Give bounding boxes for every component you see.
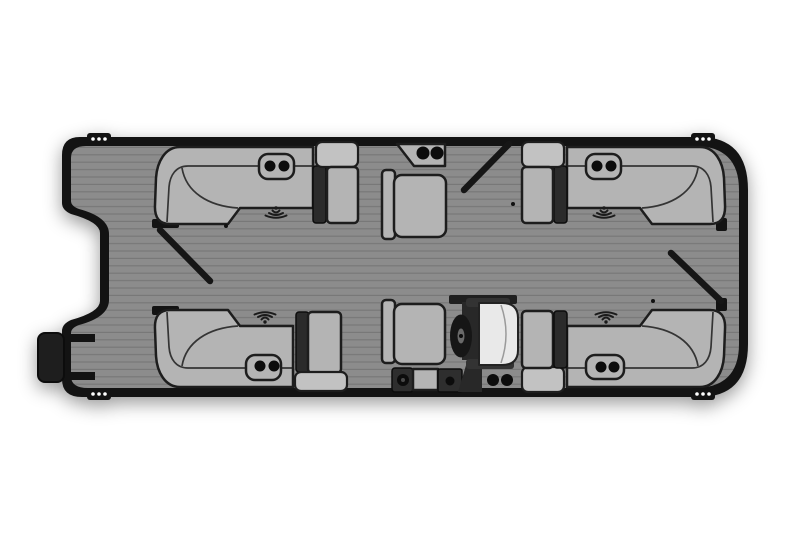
cleat-bow-starboard-dot2 <box>701 137 705 141</box>
cleat-bow-port-dot3 <box>103 137 107 141</box>
gate-latch-dot-starboard <box>651 299 655 303</box>
console-cupholder-top-1 <box>417 147 430 160</box>
chair-midship-fore-cushion <box>394 175 446 237</box>
captain-chair-seat <box>479 303 518 365</box>
cleat-stern-port-dot3 <box>103 392 107 396</box>
boat-shapes-root <box>38 133 748 400</box>
cleat-stern-starboard-dot3 <box>707 392 711 396</box>
cupholder-stern-port-1 <box>255 361 266 372</box>
endseat-cushion-bow-starboard <box>522 167 553 223</box>
cupholder-stern-starboard-1 <box>596 362 607 373</box>
pontoon-floorplan-svg <box>0 0 800 534</box>
cupholder-stern-starboard-2 <box>609 362 620 373</box>
cleat-bow-starboard-dot1 <box>695 137 699 141</box>
cleat-stern-port-dot2 <box>97 392 101 396</box>
speaker-icon-stern-starboard-dot <box>604 320 607 323</box>
endseat-backrest-stern-starboard <box>522 367 564 392</box>
cleat-stern-port-dot1 <box>91 392 95 396</box>
gate-latch-dot-bow <box>511 202 515 206</box>
armrest-bow-starboard <box>554 166 567 223</box>
steering-wheel-center <box>459 334 463 338</box>
speaker-icon-bow-port-dot <box>274 206 277 209</box>
gate-latch-dot-port <box>224 224 228 228</box>
armrest-bow-port <box>313 166 326 223</box>
helm-cupholder-1 <box>487 374 499 386</box>
endseat-cushion-stern-port <box>308 312 341 373</box>
cupholder-stern-port-2 <box>269 361 280 372</box>
cupholder-bow-starboard-1 <box>592 161 603 172</box>
cupholder-bow-starboard-2 <box>606 161 617 172</box>
armrest-stern-starboard <box>554 311 567 368</box>
endseat-cushion-bow-port <box>327 167 358 223</box>
cleat-stern-starboard-dot1 <box>695 392 699 396</box>
cleat-bow-port-dot1 <box>91 137 95 141</box>
cupholder-bow-port-2 <box>279 161 290 172</box>
helm-gadget-circle <box>446 377 455 386</box>
chair-midship-aft-cushion <box>394 304 445 364</box>
console-cupholder-top-2 <box>431 147 444 160</box>
subwoofer-speaker-center <box>401 378 405 382</box>
cupholder-bow-port-1 <box>265 161 276 172</box>
cleat-bow-port-dot2 <box>97 137 101 141</box>
endseat-backrest-bow-port <box>316 142 358 167</box>
pontoon-floorplan-canvas <box>0 0 800 534</box>
endseat-cushion-stern-starboard <box>522 311 553 368</box>
helm-step-box <box>413 369 438 390</box>
endseat-backrest-stern-port <box>295 372 347 391</box>
speaker-icon-stern-port-dot <box>263 320 266 323</box>
bow-ladder-body <box>38 333 64 382</box>
speaker-icon-bow-starboard-dot <box>602 206 605 209</box>
endseat-backrest-bow-starboard <box>522 142 564 167</box>
helm-cupholder-2 <box>501 374 513 386</box>
cleat-bow-starboard-dot3 <box>707 137 711 141</box>
cleat-stern-starboard-dot2 <box>701 392 705 396</box>
